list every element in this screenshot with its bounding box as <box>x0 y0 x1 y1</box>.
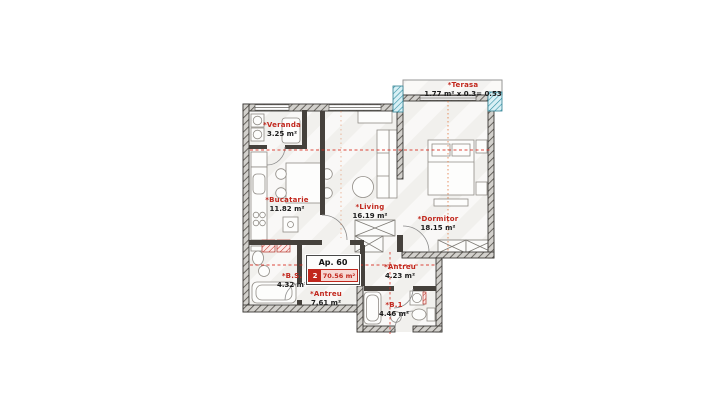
floor-plan-page: *Veranda 3.25 m² *Bucatarie 11.82 m² *Li… <box>0 0 720 420</box>
room-label-dormitor: *Dormitor 18.15 m² <box>418 215 459 233</box>
room-name: *Living <box>353 203 388 212</box>
room-area: 18.15 m² <box>418 224 459 233</box>
room-name: *B.S. <box>277 272 307 281</box>
room-area: 7.61 m² <box>310 299 342 308</box>
room-label-veranda: *Veranda 3.25 m² <box>263 121 301 139</box>
room-label-bs: *B.S. 4.32 m² <box>277 272 307 290</box>
room-area: 3.25 m² <box>263 130 301 139</box>
room-name: *Antreu <box>310 290 342 299</box>
room-name: *B.1 <box>379 301 409 310</box>
room-label-b1: *B.1 4.46 m² <box>379 301 409 319</box>
room-name: *Antreu <box>384 263 416 272</box>
room-label-living: *Living 16.19 m² <box>353 203 388 221</box>
rooms-count-badge: 2 <box>309 270 321 281</box>
total-area-value: 70.56 m² <box>321 270 357 281</box>
terrace-area-calc: 1.77 m² x 0.3= 0.53 <box>424 90 501 99</box>
room-area: 16.19 m² <box>353 212 388 221</box>
room-area: 11.82 m² <box>265 205 309 214</box>
room-name: *Bucatarie <box>265 196 309 205</box>
room-label-terasa: *Terasa 1.77 m² x 0.3= 0.53 <box>424 81 501 99</box>
room-area: 4.46 m² <box>379 310 409 319</box>
room-area: 4.32 m² <box>277 281 307 290</box>
room-label-antreu-1: *Antreu 7.61 m² <box>310 290 342 308</box>
room-name: *Terasa <box>424 81 501 90</box>
room-label-antreu-2: *Antreu 4.23 m² <box>384 263 416 281</box>
room-label-bucatarie: *Bucatarie 11.82 m² <box>265 196 309 214</box>
room-area: 4.23 m² <box>384 272 416 281</box>
room-name: *Veranda <box>263 121 301 130</box>
apartment-summary-row: 2 70.56 m² <box>308 269 358 282</box>
room-name: *Dormitor <box>418 215 459 224</box>
apartment-number: Ap. 60 <box>308 257 358 268</box>
apartment-info-box: Ap. 60 2 70.56 m² <box>306 255 360 285</box>
